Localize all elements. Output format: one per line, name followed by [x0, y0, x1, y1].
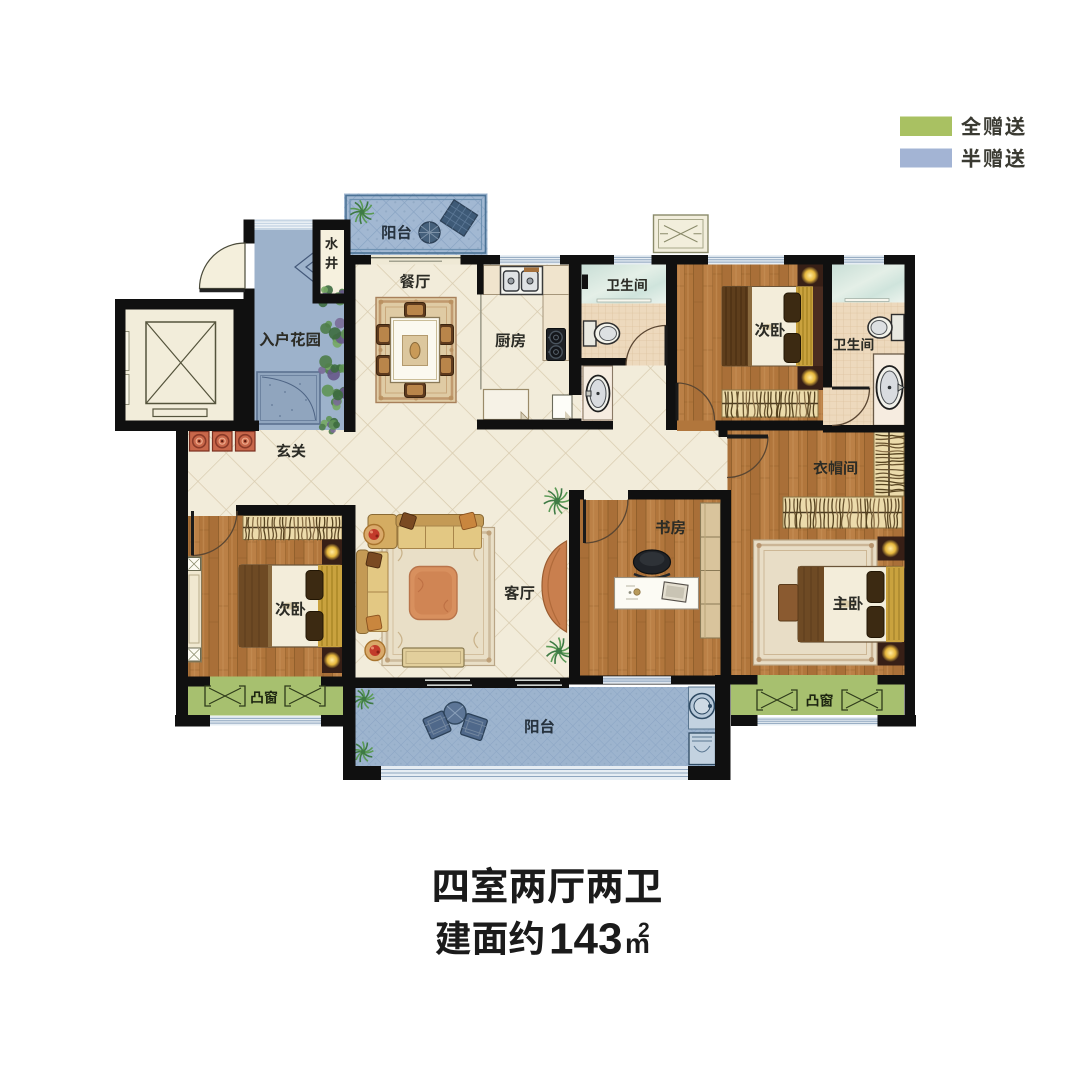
svg-text:2: 2	[638, 919, 650, 942]
svg-text:143: 143	[549, 915, 622, 964]
